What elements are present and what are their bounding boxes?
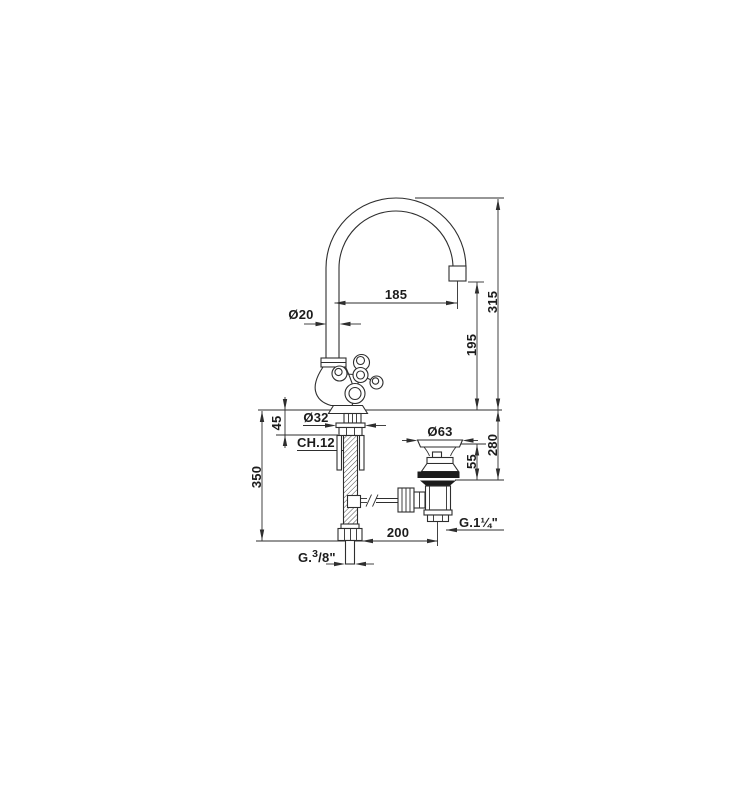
dim-diameter-63-label: Ø63 (427, 424, 452, 439)
spout-outlet (449, 266, 466, 281)
pop-up-rod (361, 495, 399, 507)
dim-350-label: 350 (249, 466, 264, 488)
spout-gooseneck (326, 198, 466, 363)
arrowhead (407, 438, 418, 442)
waste-cap-knob (433, 452, 442, 458)
waste-flange (418, 440, 463, 447)
arrowhead (475, 399, 479, 410)
mounting-stud-left (337, 436, 342, 471)
hose-connector-nut (338, 529, 362, 541)
arrowhead (362, 539, 373, 543)
dim-ch12-label: CH.12 (297, 435, 335, 450)
waste-gasket-upper (418, 472, 460, 479)
waste-gasket-lower (420, 481, 456, 487)
arrowhead (365, 423, 376, 427)
dim-height-above-deck: 315 (485, 199, 500, 410)
dim-185-label: 185 (385, 287, 407, 302)
dim-diameter-32-label: Ø32 (303, 410, 328, 425)
dim-g-1-1-4-label: G.1¼" (459, 515, 498, 530)
dim-195-label: 195 (464, 334, 479, 356)
arrowhead (260, 530, 264, 541)
arrowhead (340, 322, 351, 326)
waste-cap-plate (427, 458, 453, 464)
dim-315-label: 315 (485, 291, 500, 313)
arrowhead (475, 445, 479, 456)
arrowhead (355, 562, 366, 566)
dim-waste-thread: G.1¼" (446, 515, 504, 532)
dim-supply-thread: G.3/8" (298, 548, 374, 566)
faucet-technical-drawing: 185 Ø20 315 195 280 (0, 0, 739, 800)
waste-cone (422, 464, 459, 472)
rod-clamp (348, 496, 361, 508)
arrowhead (496, 469, 500, 480)
mounting-stud-right (360, 436, 365, 471)
supply-hose (338, 436, 398, 565)
arrowhead (496, 199, 500, 210)
arrowhead (283, 399, 287, 410)
dim-wrench-size: CH.12 (297, 435, 335, 450)
reference-lines (256, 198, 504, 541)
arrowhead (496, 411, 500, 422)
arrowhead (496, 399, 500, 410)
arrowhead (316, 322, 327, 326)
faucet (315, 198, 466, 414)
dim-below-deck-depth: 280 (485, 411, 500, 480)
mounting-nut (339, 428, 362, 436)
faucet-base (329, 406, 368, 414)
arrowhead (446, 528, 457, 532)
dim-spout-tube-diameter: Ø20 (288, 307, 361, 326)
dim-max-deck-thickness: 45 (269, 397, 287, 448)
dim-280-label: 280 (485, 434, 500, 456)
supply-tube-end (346, 541, 355, 565)
dim-waste-horizontal-offset: 200 (362, 525, 438, 543)
waste-tail-lip (424, 510, 452, 515)
arrowhead (463, 438, 474, 442)
dim-hose-length: 350 (249, 411, 264, 541)
braided-hose (344, 436, 358, 529)
hose-connector-collar (341, 524, 359, 529)
arrowhead (427, 539, 438, 543)
dim-55-label: 55 (464, 454, 479, 469)
rod-break-mark (373, 495, 379, 507)
arrowhead (475, 469, 479, 480)
dim-diameter-20-label: Ø20 (288, 307, 313, 322)
dim-200-label: 200 (387, 525, 409, 540)
dim-spout-outlet-height: 195 (464, 283, 479, 410)
arrowhead (283, 435, 287, 446)
rod-break-mark (366, 495, 372, 507)
dim-spout-reach: 185 (335, 287, 458, 305)
dim-waste-clamp-range: 55 (464, 445, 479, 480)
arrowhead (475, 283, 479, 294)
arrowhead (260, 411, 264, 422)
dim-45-label: 45 (269, 416, 284, 431)
dim-g-3-8-label: G.3/8" (298, 548, 336, 565)
arrowhead (446, 301, 457, 305)
mounting-washer (336, 423, 365, 428)
waste-tailpiece (428, 515, 449, 522)
spec-sheet-page: 185 Ø20 315 195 280 (0, 0, 739, 800)
